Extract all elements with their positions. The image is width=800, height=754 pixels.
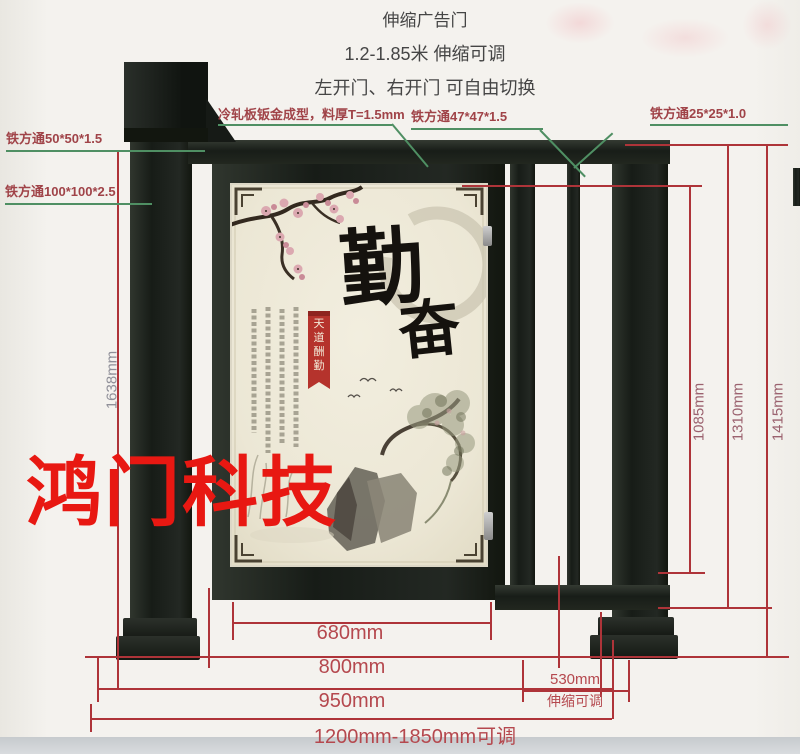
calligraphy-sub: 奋 bbox=[395, 290, 464, 369]
leader-tube25 bbox=[650, 124, 788, 126]
image-edge-fragment bbox=[793, 168, 800, 206]
telescopic-bottom-rail bbox=[495, 585, 670, 610]
svg-text:道: 道 bbox=[314, 330, 325, 344]
dim-label-950: 950mm bbox=[319, 690, 386, 713]
callout-coldrolled: 冷轧板钣金成型，料厚T=1.5mm bbox=[218, 104, 405, 123]
dim-tick-530-right bbox=[628, 660, 630, 702]
door-lock-upper bbox=[483, 226, 492, 246]
leader-tube47 bbox=[411, 128, 543, 130]
title-line-1: 伸缩广告门 bbox=[230, 6, 620, 31]
svg-text:酬: 酬 bbox=[314, 345, 325, 358]
left-post bbox=[130, 140, 192, 628]
watermark-smudge bbox=[640, 18, 730, 58]
svg-text:天: 天 bbox=[314, 317, 325, 330]
dim-label-1638: 1638mm bbox=[104, 351, 121, 409]
title-line-3: 左开门、右开门 可自由切换 bbox=[230, 74, 620, 100]
callout-tube50: 铁方通50*50*1.5 bbox=[6, 128, 102, 147]
dim-ref-rail-top bbox=[462, 185, 702, 187]
dim-tick-range-right bbox=[612, 640, 614, 719]
leader-tube100 bbox=[5, 203, 152, 205]
callout-tube47: 铁方通47*47*1.5 bbox=[411, 106, 507, 125]
dim-line-1638 bbox=[117, 150, 119, 688]
dim-ref-top-right bbox=[625, 144, 788, 146]
telescopic-bar-25 bbox=[567, 162, 580, 602]
dim-tick-530-left bbox=[522, 660, 524, 702]
dim-tick bbox=[97, 658, 99, 702]
leader-tube50 bbox=[6, 150, 205, 152]
title-line-2: 1.2-1.85米 伸缩可调 bbox=[230, 40, 620, 66]
dim-label-1415: 1415mm bbox=[770, 383, 787, 441]
brand-watermark: 鸿门科技 bbox=[26, 448, 338, 539]
dim-tick-range-left bbox=[90, 704, 92, 732]
seal-banner: 天 道 酬 勤 bbox=[308, 311, 330, 389]
dim-tick-680-right bbox=[490, 602, 492, 640]
dim-label-530-note: 伸缩可调 bbox=[547, 691, 603, 711]
dim-label-1085: 1085mm bbox=[691, 383, 708, 441]
dim-tick-800-right bbox=[558, 556, 560, 668]
dim-label-680: 680mm bbox=[317, 622, 384, 645]
dim-label-range: 1200mm-1850mm可调 bbox=[314, 720, 516, 749]
dim-tick-950-right bbox=[600, 612, 602, 697]
right-post bbox=[612, 143, 668, 629]
dim-label-800: 800mm bbox=[319, 656, 386, 679]
motor-housing-lip bbox=[124, 128, 208, 142]
svg-text:勤: 勤 bbox=[314, 359, 325, 372]
dim-tick-680-left bbox=[232, 602, 234, 640]
dim-line-1310 bbox=[727, 144, 729, 607]
right-post-base-upper bbox=[598, 617, 674, 637]
dim-line-1415 bbox=[766, 144, 768, 656]
dim-label-1310: 1310mm bbox=[730, 383, 747, 441]
callout-tube25: 铁方通25*25*1.0 bbox=[650, 103, 746, 122]
telescopic-bar-47 bbox=[510, 162, 535, 602]
watermark-smudge bbox=[742, 0, 792, 50]
callout-tube100: 铁方通100*100*2.5 bbox=[5, 181, 116, 200]
dim-line-1085 bbox=[689, 187, 691, 572]
dim-label-530: 530mm bbox=[550, 671, 600, 688]
dim-ref-1310-bottom bbox=[658, 607, 772, 609]
dim-ref-1085-bottom bbox=[658, 572, 705, 574]
door-lock-lower bbox=[484, 512, 493, 540]
gate-product-diagram: 伸缩广告门 1.2-1.85米 伸缩可调 左开门、右开门 可自由切换 bbox=[0, 0, 800, 754]
dim-line-800-ground bbox=[85, 656, 789, 658]
dim-tick-800-left bbox=[208, 588, 210, 668]
leader-coldrolled bbox=[218, 124, 392, 126]
